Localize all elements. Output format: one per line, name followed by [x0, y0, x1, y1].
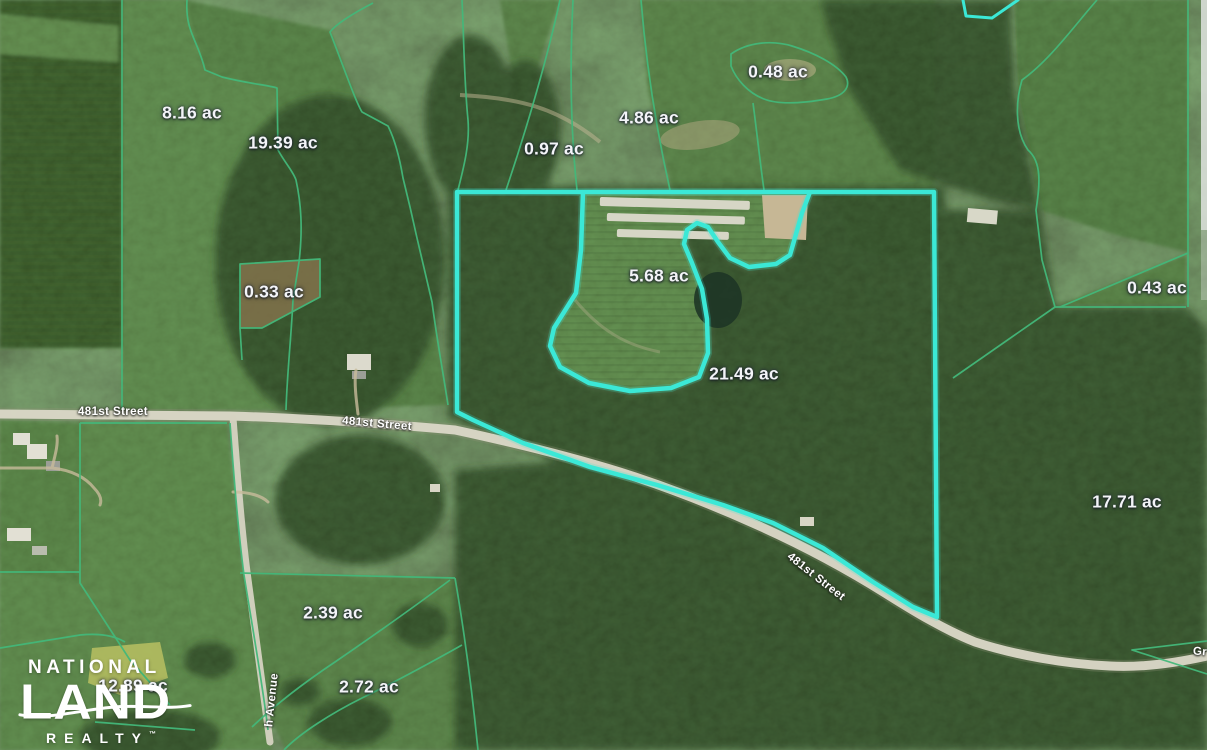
satellite-imagery	[0, 0, 1207, 750]
canopy-texture	[0, 0, 1207, 750]
map-edge-strip	[1201, 0, 1207, 230]
logo-land-text: LAND	[20, 678, 171, 727]
logo-realty-text: REALTY™	[46, 731, 171, 745]
satellite-map[interactable]: 8.16 ac19.39 ac0.97 ac4.86 ac0.48 ac0.33…	[0, 0, 1207, 750]
national-land-realty-logo: NATIONAL LAND REALTY™	[20, 658, 171, 745]
logo-national-text: NATIONAL	[28, 658, 171, 677]
logo-swoosh	[18, 702, 193, 720]
logo-trademark: ™	[149, 731, 156, 738]
